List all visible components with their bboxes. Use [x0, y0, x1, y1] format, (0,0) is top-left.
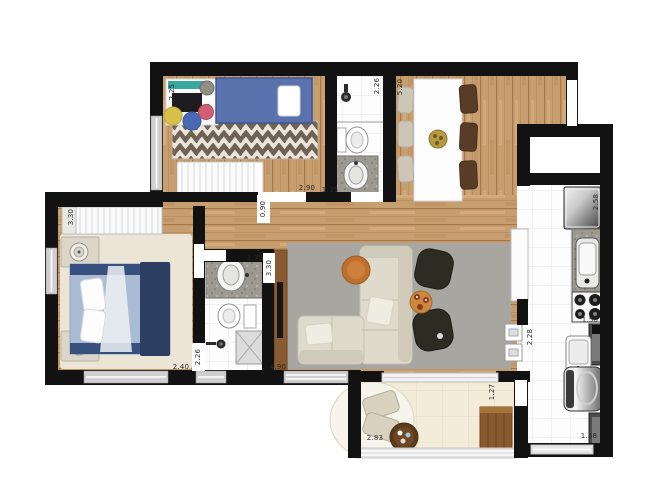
bathroom-center-door — [204, 250, 226, 261]
dimension-label: 2.25 — [168, 84, 176, 100]
master-bedroom-door — [194, 244, 204, 278]
bathroom-top-door — [351, 192, 383, 202]
pillow — [80, 309, 106, 344]
pouf-pink — [199, 105, 214, 120]
decor-tray — [410, 291, 432, 313]
pillow — [80, 278, 106, 313]
dimension-label: 2.90 — [299, 184, 315, 192]
kitchen-sink — [576, 238, 599, 288]
dimension-label: 1.35 — [247, 254, 263, 262]
window — [46, 248, 57, 294]
counter-peninsula — [511, 229, 528, 301]
balcony-table — [390, 423, 418, 451]
toilet-icon — [337, 127, 368, 153]
washing-machine — [564, 367, 602, 411]
floor-plan: 2.25 2.90 1.35 2.26 5.20 3.30 0.90 1.35 … — [0, 0, 670, 501]
wood-bench — [480, 407, 512, 448]
dining-chair-dark — [459, 84, 478, 113]
dimension-label: 3.30 — [265, 260, 273, 276]
dimension-label: 2.28 — [526, 329, 534, 345]
balcony-sliding-door — [382, 373, 498, 382]
side-table — [342, 256, 370, 284]
master-wardrobe — [62, 207, 162, 234]
dimension-label: 1.35 — [322, 186, 338, 194]
sofa-pillow — [366, 296, 394, 326]
master-bedroom — [61, 207, 170, 361]
sliding-door — [284, 371, 348, 383]
dining-chair-dark — [459, 123, 477, 152]
sink-counter — [336, 156, 378, 194]
dimension-label: 1.58 — [581, 432, 597, 440]
dining-chair-light — [397, 156, 413, 183]
centerpiece — [429, 130, 447, 148]
dimension-label: 2.58 — [592, 194, 600, 210]
pillow — [278, 86, 300, 116]
dimension-label: 2.83 — [367, 434, 383, 442]
kids-single-bed — [216, 78, 312, 123]
dining-chair-light — [398, 121, 413, 147]
desk-chair — [200, 81, 214, 95]
dimension-label: 2.26 — [194, 348, 202, 365]
dimension-label: 3.30 — [67, 209, 75, 225]
laundry-balcony-door — [515, 380, 527, 406]
dimension-label: 5.20 — [396, 79, 404, 95]
tv-icon — [277, 282, 283, 338]
dimension-label: 4.90 — [270, 363, 286, 371]
dimension-label: 2.26 — [373, 77, 381, 94]
pouf-blue — [183, 112, 201, 130]
toilet-icon — [218, 304, 256, 328]
double-bed — [70, 262, 170, 356]
dimension-label: 1.50 — [582, 316, 598, 324]
pouf-yellow — [164, 107, 182, 125]
dining-chair-dark — [459, 161, 477, 190]
ottoman-detail — [437, 333, 443, 339]
window — [531, 445, 593, 454]
sofa-pillow — [305, 323, 333, 346]
dimension-label: 2.40 — [173, 363, 189, 371]
railing — [356, 448, 516, 458]
dimension-label: 0.90 — [259, 201, 267, 217]
window — [84, 371, 168, 383]
headboard — [140, 262, 170, 356]
entry-door — [567, 80, 577, 126]
window — [151, 116, 162, 190]
floor-plan-svg: 2.25 2.90 1.35 2.26 5.20 3.30 0.90 1.35 … — [0, 0, 670, 501]
entry-nook-floor — [530, 137, 600, 175]
tv-panel — [274, 250, 287, 370]
dimension-label: 1.27 — [488, 384, 496, 400]
cabinet-small — [505, 344, 522, 361]
window — [196, 371, 226, 383]
nightstand-lamp — [61, 237, 99, 267]
kids-wardrobe — [177, 162, 263, 194]
cabinet-small — [505, 324, 522, 341]
